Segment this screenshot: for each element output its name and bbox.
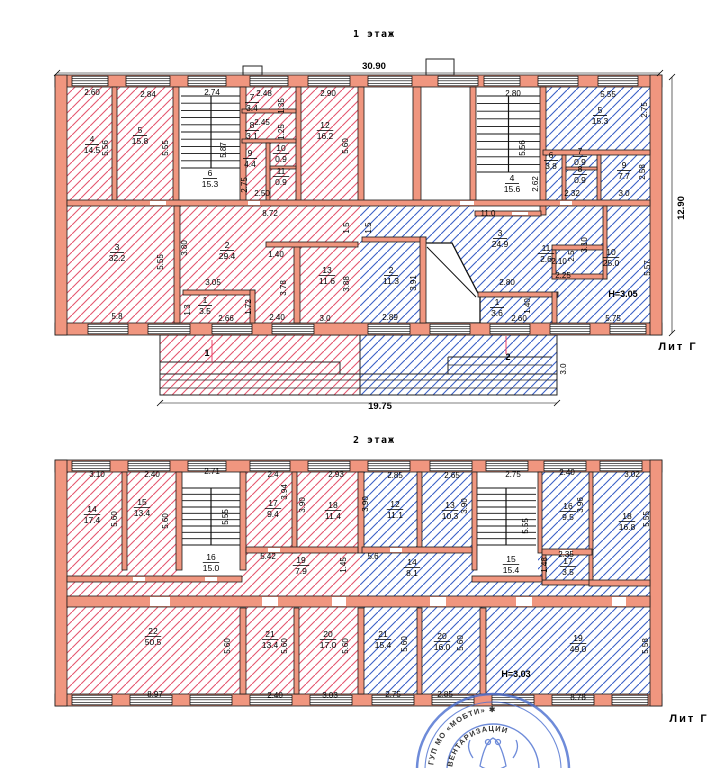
- room-number: 18: [328, 500, 338, 510]
- text-label: Н=3.03: [501, 669, 530, 679]
- dimension-label: 2.45: [254, 118, 270, 127]
- room-number: 16: [206, 552, 216, 562]
- room-number: 9: [622, 160, 627, 170]
- dimension-label: 1.3: [183, 304, 192, 316]
- dimension-label: 2.25: [555, 271, 571, 280]
- porch-width-dim: 19.75: [368, 401, 392, 412]
- room-number: 12: [320, 120, 330, 130]
- room-number: 3: [498, 228, 503, 238]
- dimension-label: 5.42: [260, 552, 276, 561]
- room-area: 15.4: [375, 640, 392, 650]
- dimension-label: 5.60: [223, 638, 232, 654]
- dimension-label: 2.5: [567, 250, 576, 262]
- dimension-label: 2.60: [84, 88, 100, 97]
- room-area: 14.5: [84, 145, 101, 155]
- dimension-label: 5.60: [400, 636, 409, 652]
- dimension-label: 2.10: [551, 257, 567, 266]
- room-number: 16: [563, 501, 573, 511]
- dimension-label: 2.4: [267, 470, 279, 479]
- room-area: 25.0: [603, 258, 620, 268]
- room-number: 9: [248, 148, 253, 158]
- room-number: 4: [510, 173, 515, 183]
- floor1-width-dim: 30.90: [362, 61, 386, 72]
- dimension-label: 3.05: [205, 278, 221, 287]
- room-number: 2: [225, 240, 230, 250]
- dimension-label: 5.55: [600, 90, 616, 99]
- dimension-label: 2.65: [444, 471, 460, 480]
- dimension-label: 1.40: [523, 298, 532, 314]
- dimension-label: 8.97: [147, 690, 163, 699]
- dimension-label: 3.90: [460, 498, 469, 514]
- room-area: 17.4: [84, 515, 101, 525]
- dimension-label: 5.60: [341, 638, 350, 654]
- dimension-label: 1.72: [244, 299, 253, 315]
- dimension-label: 2.35: [558, 550, 574, 559]
- dimension-label: 1.45: [339, 557, 348, 573]
- room-area: 15.4: [503, 565, 520, 575]
- dimension-label: 5.55: [161, 140, 170, 156]
- room-number: 11: [277, 166, 286, 176]
- room-area: 11.3: [383, 276, 399, 286]
- room-number: 18: [622, 511, 632, 521]
- room-area: 15.8: [132, 136, 149, 146]
- room-number: 5: [138, 125, 143, 135]
- dimension-label: 2.74: [204, 88, 220, 97]
- room-number: 13: [445, 500, 455, 510]
- floor-plan: 414.5515.8615.373.483.194.4100.9110.9121…: [0, 0, 712, 768]
- dimension-label: 2.80: [505, 89, 521, 98]
- dimension-label: 1.35: [277, 98, 286, 114]
- porch-depth-dim: 3.0: [559, 363, 568, 375]
- dimension-label: 11.0: [481, 209, 497, 218]
- dimension-label: 8.72: [262, 209, 278, 218]
- room-number: 4: [90, 134, 95, 144]
- room-number: 1: [495, 297, 500, 307]
- room-area: 16.2: [317, 131, 334, 141]
- room-number: 22: [148, 626, 158, 636]
- room-area: 11.4: [325, 511, 341, 521]
- dimension-label: 5.6: [367, 552, 379, 561]
- dimension-label: 2.60: [511, 314, 527, 323]
- dimension-label: 5.56: [101, 140, 110, 156]
- room-number: 1: [203, 295, 208, 305]
- dimension-label: 8.78: [570, 693, 586, 702]
- dimension-label: 2.40: [267, 691, 283, 700]
- room-number: 2: [389, 265, 394, 275]
- dimension-label: 3.90: [361, 496, 370, 512]
- room-area: 50.5: [145, 637, 162, 647]
- room-area: 11.6: [319, 276, 335, 286]
- room-area: 17.0: [320, 640, 337, 650]
- room-area: 3.4: [246, 103, 258, 113]
- dimension-label: 3.90: [298, 497, 307, 513]
- room-area: 3.5: [199, 306, 211, 316]
- dimension-label: 1.40: [268, 250, 284, 259]
- room-number: 10: [276, 143, 286, 153]
- dimension-label: 5.60: [456, 635, 465, 651]
- dimension-label: 2.85: [437, 690, 453, 699]
- room-number: 17: [268, 498, 278, 508]
- room-area: 3.8: [545, 161, 557, 171]
- dimension-label: 2.89: [382, 313, 398, 322]
- room-area: 3.5: [562, 567, 574, 577]
- dimension-label: 3.03: [322, 691, 338, 700]
- room-area: 13.4: [134, 508, 151, 518]
- dimension-label: 2.32: [564, 189, 580, 198]
- dimension-label: 5.60: [110, 511, 119, 527]
- room-number: 6: [208, 168, 213, 178]
- dimension-label: 1.5: [364, 222, 373, 234]
- dimension-label: 3.80: [180, 240, 189, 256]
- room-number: 14: [407, 557, 417, 567]
- dimension-label: 2.40: [269, 313, 285, 322]
- room-area: 15.6: [504, 184, 521, 194]
- dimension-label: 2.75: [640, 102, 649, 118]
- room-area: 32.2: [109, 253, 126, 263]
- room-area: 7.7: [618, 171, 630, 181]
- dimension-label: 5.60: [161, 513, 170, 529]
- dimension-label: 5.87: [219, 142, 228, 158]
- floor1-title: 1 этаж: [353, 29, 395, 40]
- dimension-label: 5.58: [641, 638, 650, 654]
- room-area: 11.1: [387, 510, 403, 520]
- dimension-label: 3.0: [618, 189, 630, 198]
- room-area: 8.1: [406, 568, 418, 578]
- room-area: 16.8: [619, 522, 636, 532]
- room-area: 13.4: [262, 640, 279, 650]
- dimension-label: 1.5: [342, 222, 351, 234]
- dimension-label: 3.88: [342, 276, 351, 292]
- room-number: 12: [390, 499, 400, 509]
- dimension-label: 3.78: [279, 280, 288, 296]
- room-area: 15.0: [203, 563, 220, 573]
- dimension-label: 2.75: [385, 690, 401, 699]
- dimension-label: 2.50: [254, 189, 270, 198]
- room-area: 0.9: [275, 177, 287, 187]
- dimension-label: 2.40: [559, 468, 575, 477]
- dimension-label: 2.90: [320, 89, 336, 98]
- room-area: 4.4: [244, 159, 256, 169]
- stamp-emblem: [469, 738, 518, 768]
- dimension-label: 5.8: [111, 312, 123, 321]
- dimension-label: 2.62: [531, 176, 540, 192]
- dimension-label: 2.93: [328, 470, 344, 479]
- dimension-label: 1.48: [540, 557, 549, 573]
- room-number: 20: [437, 631, 447, 641]
- room-number: 10: [606, 247, 616, 257]
- floor2-title: 2 этаж: [353, 435, 395, 446]
- dimension-label: 2.66: [218, 314, 234, 323]
- room-number: 15: [506, 554, 516, 564]
- room-area: 7.9: [295, 566, 307, 576]
- dimension-label: 5.55: [642, 511, 651, 527]
- dimension-label: 3.96: [576, 497, 585, 513]
- dimension-label: 3.91: [409, 275, 418, 291]
- dimension-label: 1.25: [277, 124, 286, 140]
- floor2-plan: 1417.41513.41615.0179.41811.4197.92017.0…: [55, 460, 662, 706]
- room-area: 24.9: [492, 239, 509, 249]
- room-area: 3.1: [246, 131, 258, 141]
- room-number: 7: [250, 92, 255, 102]
- room-number: 5: [598, 105, 603, 115]
- dimension-label: 2.48: [256, 89, 272, 98]
- floor1-height-dim: 12.90: [676, 196, 687, 220]
- room-number: 7: [578, 146, 583, 156]
- dimension-label: 3.10: [89, 470, 105, 479]
- room-area: 15.3: [592, 116, 609, 126]
- dimension-label: 2.85: [387, 471, 403, 480]
- room-area: 0.9: [275, 154, 287, 164]
- dimension-label: 5.55: [221, 509, 230, 525]
- dimension-label: 2.71: [204, 467, 220, 476]
- room-number: 19: [296, 555, 306, 565]
- dimension-label: 2.80: [499, 278, 515, 287]
- room-area: 10.3: [442, 511, 459, 521]
- room-area: 16.0: [434, 642, 451, 652]
- room-area: 29.4: [219, 251, 236, 261]
- dimension-label: 2.40: [144, 470, 160, 479]
- dimension-label: 2.84: [140, 90, 156, 99]
- room-area: 49.0: [570, 644, 587, 654]
- dimension-label: 3.10: [580, 237, 589, 253]
- dimension-label: 3.94: [280, 484, 289, 500]
- floor1-litera: Лит Г: [658, 341, 697, 353]
- room-number: 3: [115, 242, 120, 252]
- room-number: 11: [542, 243, 551, 253]
- text-label: Н=3.05: [608, 289, 637, 299]
- dimension-label: 3.0: [319, 314, 331, 323]
- dimension-label: 5.55: [521, 518, 530, 534]
- floor2-litera: Лит Г: [669, 713, 708, 725]
- room-number: 21: [378, 629, 388, 639]
- room-number: 6: [549, 150, 554, 160]
- room-number: 13: [322, 265, 332, 275]
- text-label: 2: [505, 352, 510, 362]
- room-area: 9.5: [562, 512, 574, 522]
- room-number: 21: [265, 629, 275, 639]
- dimension-label: 5.60: [341, 138, 350, 154]
- dimension-label: 5.55: [156, 254, 165, 270]
- room-number: 8: [578, 164, 583, 174]
- floor1-plan: 414.5515.8615.373.483.194.4100.9110.9121…: [54, 59, 675, 406]
- room-number: 15: [137, 497, 147, 507]
- dimension-label: 5.57: [643, 260, 652, 276]
- room-area: 9.4: [267, 509, 279, 519]
- room-number: 19: [573, 633, 583, 643]
- dimension-label: 3.02: [624, 470, 640, 479]
- dimension-label: 2.58: [638, 164, 647, 180]
- room-area: 3.6: [491, 308, 503, 318]
- text-label: 1: [204, 348, 209, 358]
- room-area: 15.3: [202, 179, 219, 189]
- dimension-label: 5.56: [518, 140, 527, 156]
- dimension-label: 5.75: [605, 314, 621, 323]
- dimension-label: 5.60: [280, 638, 289, 654]
- room-area: 0.9: [574, 175, 586, 185]
- room-number: 14: [87, 504, 97, 514]
- room-number: 20: [323, 629, 333, 639]
- dimension-label: 2.75: [240, 177, 249, 193]
- dimension-label: 2.75: [505, 470, 521, 479]
